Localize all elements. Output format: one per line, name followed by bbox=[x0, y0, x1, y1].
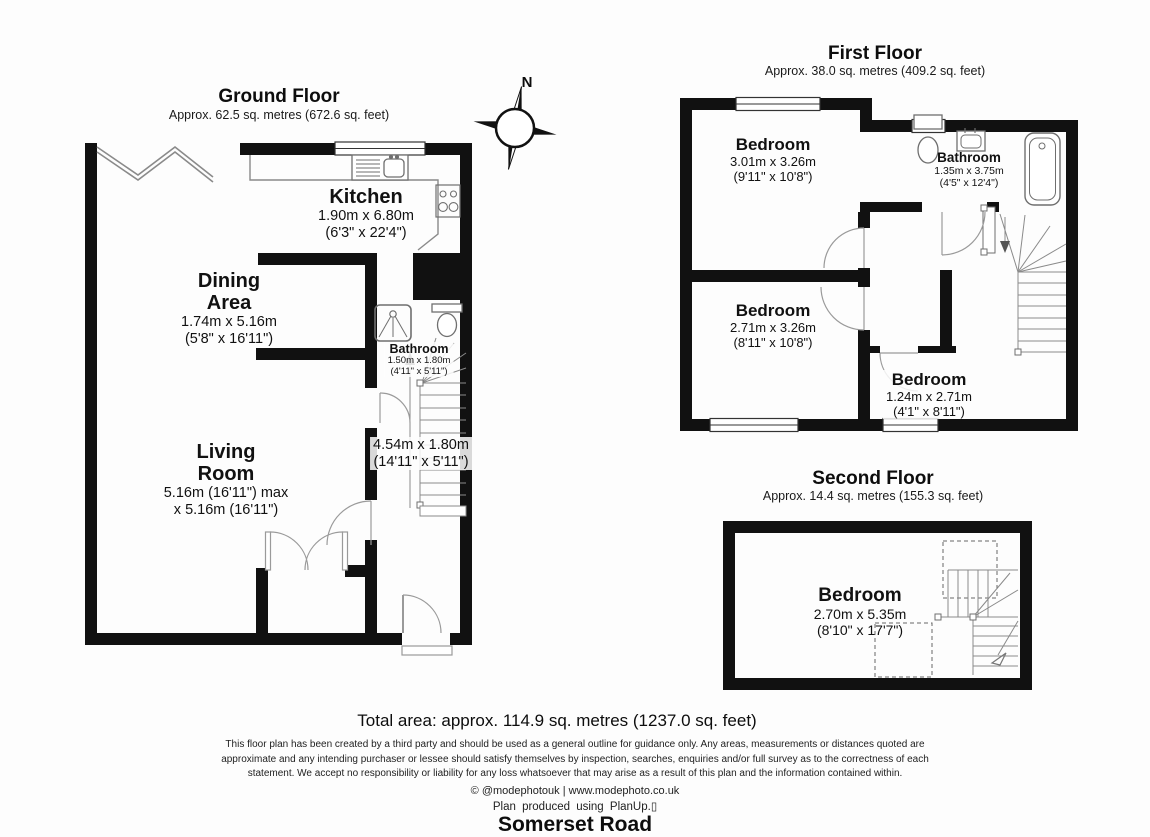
room-dims-metric: 1.90m x 6.80m bbox=[318, 208, 414, 225]
room-dims-imperial: (9'11" x 10'8") bbox=[730, 169, 816, 184]
room-dims-metric: 5.16m (16'11") max bbox=[164, 485, 289, 502]
bath-icon bbox=[1025, 133, 1060, 205]
room-dims-imperial: (5'8" x 16'11") bbox=[181, 331, 277, 348]
bedroom1-door-arc bbox=[824, 228, 864, 268]
first-floor-title: First Floor bbox=[828, 43, 922, 65]
room-label-bedroom-3: Bedroom 1.24m x 2.71m (4'1" x 8'11") bbox=[883, 370, 975, 419]
sink-icon bbox=[352, 155, 408, 180]
first-floor-area: Approx. 38.0 sq. metres (409.2 sq. feet) bbox=[765, 64, 985, 78]
room-dims-imperial: (4'5" x 12'4") bbox=[934, 177, 1003, 189]
room-label-second-bedroom: Bedroom 2.70m x 5.35m (8'10" x 17'7") bbox=[814, 585, 907, 638]
room-dims-imperial: x 5.16m (16'11") bbox=[164, 502, 289, 519]
toilet-icon bbox=[432, 304, 462, 337]
room-name: Bedroom bbox=[886, 370, 972, 389]
room-label-bedroom-1: Bedroom 3.01m x 3.26m (9'11" x 10'8") bbox=[730, 135, 816, 184]
room-label-kitchen: Kitchen 1.90m x 6.80m (6'3" x 22'4") bbox=[318, 186, 414, 241]
ground-floor-area: Approx. 62.5 sq. metres (672.6 sq. feet) bbox=[169, 108, 389, 122]
property-address: Somerset Road bbox=[498, 813, 652, 837]
room-dims-metric: 1.74m x 5.16m bbox=[181, 314, 277, 331]
floorplan-page: { "meta": { "compass_label": "N", "wall_… bbox=[0, 0, 1150, 836]
room-dims-imperial: (4'1" x 8'11") bbox=[886, 404, 972, 419]
ground-floor-plan bbox=[80, 138, 480, 658]
room-name: Dining bbox=[181, 270, 277, 292]
room-name: Living bbox=[164, 441, 289, 463]
bathroom-door-arc bbox=[380, 393, 410, 423]
room-dims-imperial: (8'10" x 17'7") bbox=[814, 622, 907, 638]
kitchen-window bbox=[335, 142, 425, 155]
bathroom-door-arc bbox=[942, 212, 985, 255]
room-dims-metric: 1.35m x 3.75m bbox=[934, 165, 1003, 177]
bedroom2-door-arc bbox=[821, 287, 864, 330]
second-floor-title: Second Floor bbox=[812, 468, 933, 490]
room-name: Area bbox=[181, 292, 277, 314]
credit-planup: Plan produced using PlanUp.▯ bbox=[493, 799, 657, 813]
room-name: Bathroom bbox=[388, 342, 451, 356]
room-dims-metric: 1.50m x 1.80m bbox=[388, 356, 451, 367]
room-label-dining-area: Dining Area 1.74m x 5.16m (5'8" x 16'11"… bbox=[181, 270, 277, 347]
stove-icon bbox=[436, 185, 460, 217]
credit-copyright: © @modephotouk | www.modephoto.co.uk bbox=[471, 785, 680, 797]
room-dims-metric: 2.70m x 5.35m bbox=[814, 606, 907, 622]
room-dims-metric: 3.01m x 3.26m bbox=[730, 154, 816, 169]
stairs-icon bbox=[981, 205, 1066, 355]
room-name: Bedroom bbox=[730, 135, 816, 154]
room-name: Room bbox=[164, 463, 289, 485]
room-name: Kitchen bbox=[318, 186, 414, 208]
hall-living-door-arc bbox=[327, 501, 371, 545]
room-label-living-room: Living Room 5.16m (16'11") max x 5.16m (… bbox=[164, 441, 289, 518]
room-name: Bedroom bbox=[730, 301, 816, 320]
total-area-text: Total area: approx. 114.9 sq. metres (12… bbox=[357, 711, 756, 731]
double-doors-arc bbox=[266, 532, 348, 570]
room-dims-imperial: (8'11" x 10'8") bbox=[730, 335, 816, 350]
room-label-bedroom-2: Bedroom 2.71m x 3.26m (8'11" x 10'8") bbox=[730, 301, 816, 350]
room-label-hall: 4.54m x 1.80m (14'11" x 5'11") bbox=[370, 437, 472, 470]
second-floor-area: Approx. 14.4 sq. metres (155.3 sq. feet) bbox=[763, 489, 983, 503]
room-dims-metric: 4.54m x 1.80m bbox=[373, 437, 469, 454]
room-label-ground-bathroom: Bathroom 1.50m x 1.80m (4'11" x 5'11") bbox=[385, 342, 454, 377]
shower-icon bbox=[375, 305, 411, 341]
room-name: Bedroom bbox=[814, 585, 907, 606]
room-name: Bathroom bbox=[934, 150, 1003, 165]
stairs-down-arrow bbox=[1000, 217, 1010, 253]
room-dims-imperial: (14'11" x 5'11") bbox=[373, 454, 469, 471]
room-label-first-bathroom: Bathroom 1.35m x 3.75m (4'5" x 12'4") bbox=[934, 150, 1003, 189]
room-dims-metric: 1.24m x 2.71m bbox=[886, 389, 972, 404]
ground-floor-title: Ground Floor bbox=[218, 86, 339, 108]
wall-break-zigzag bbox=[97, 147, 213, 182]
stairs-icon bbox=[935, 570, 1018, 675]
stairs-direction-arrow bbox=[992, 653, 1006, 665]
room-dims-imperial: (4'11" x 5'11") bbox=[388, 367, 451, 378]
basin-icon bbox=[957, 128, 985, 151]
compass-icon bbox=[470, 83, 570, 183]
disclaimer-text: This floor plan has been created by a th… bbox=[201, 738, 949, 782]
room-dims-metric: 2.71m x 3.26m bbox=[730, 320, 816, 335]
front-door-arc bbox=[402, 595, 452, 655]
room-dims-imperial: (6'3" x 22'4") bbox=[318, 225, 414, 242]
